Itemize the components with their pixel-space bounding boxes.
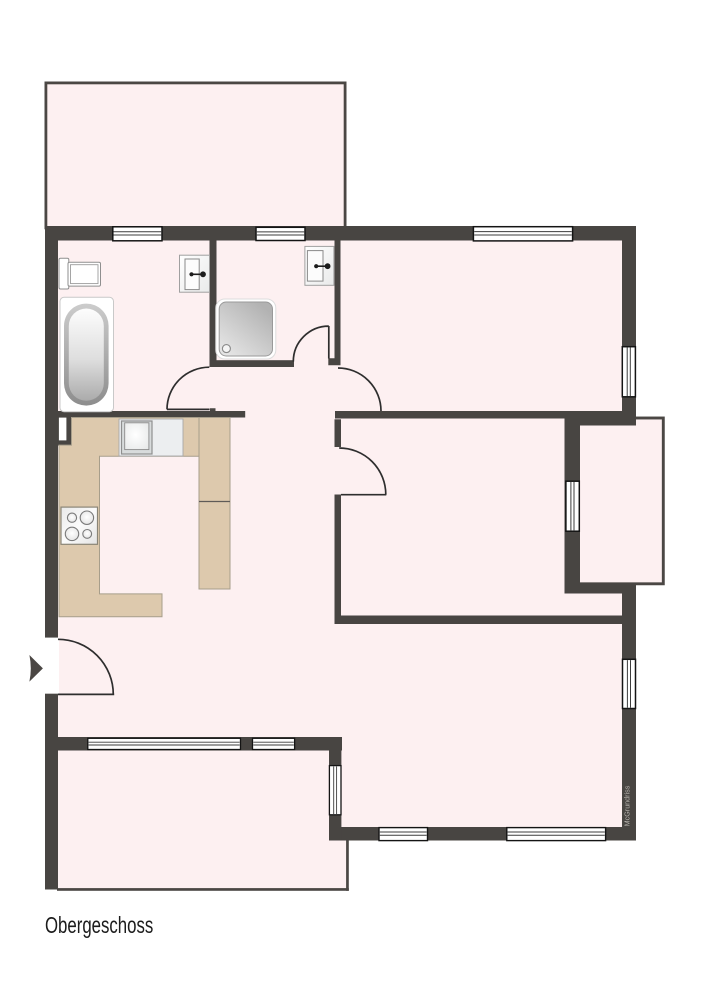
svg-text:McGrundriss: McGrundriss — [623, 785, 632, 826]
